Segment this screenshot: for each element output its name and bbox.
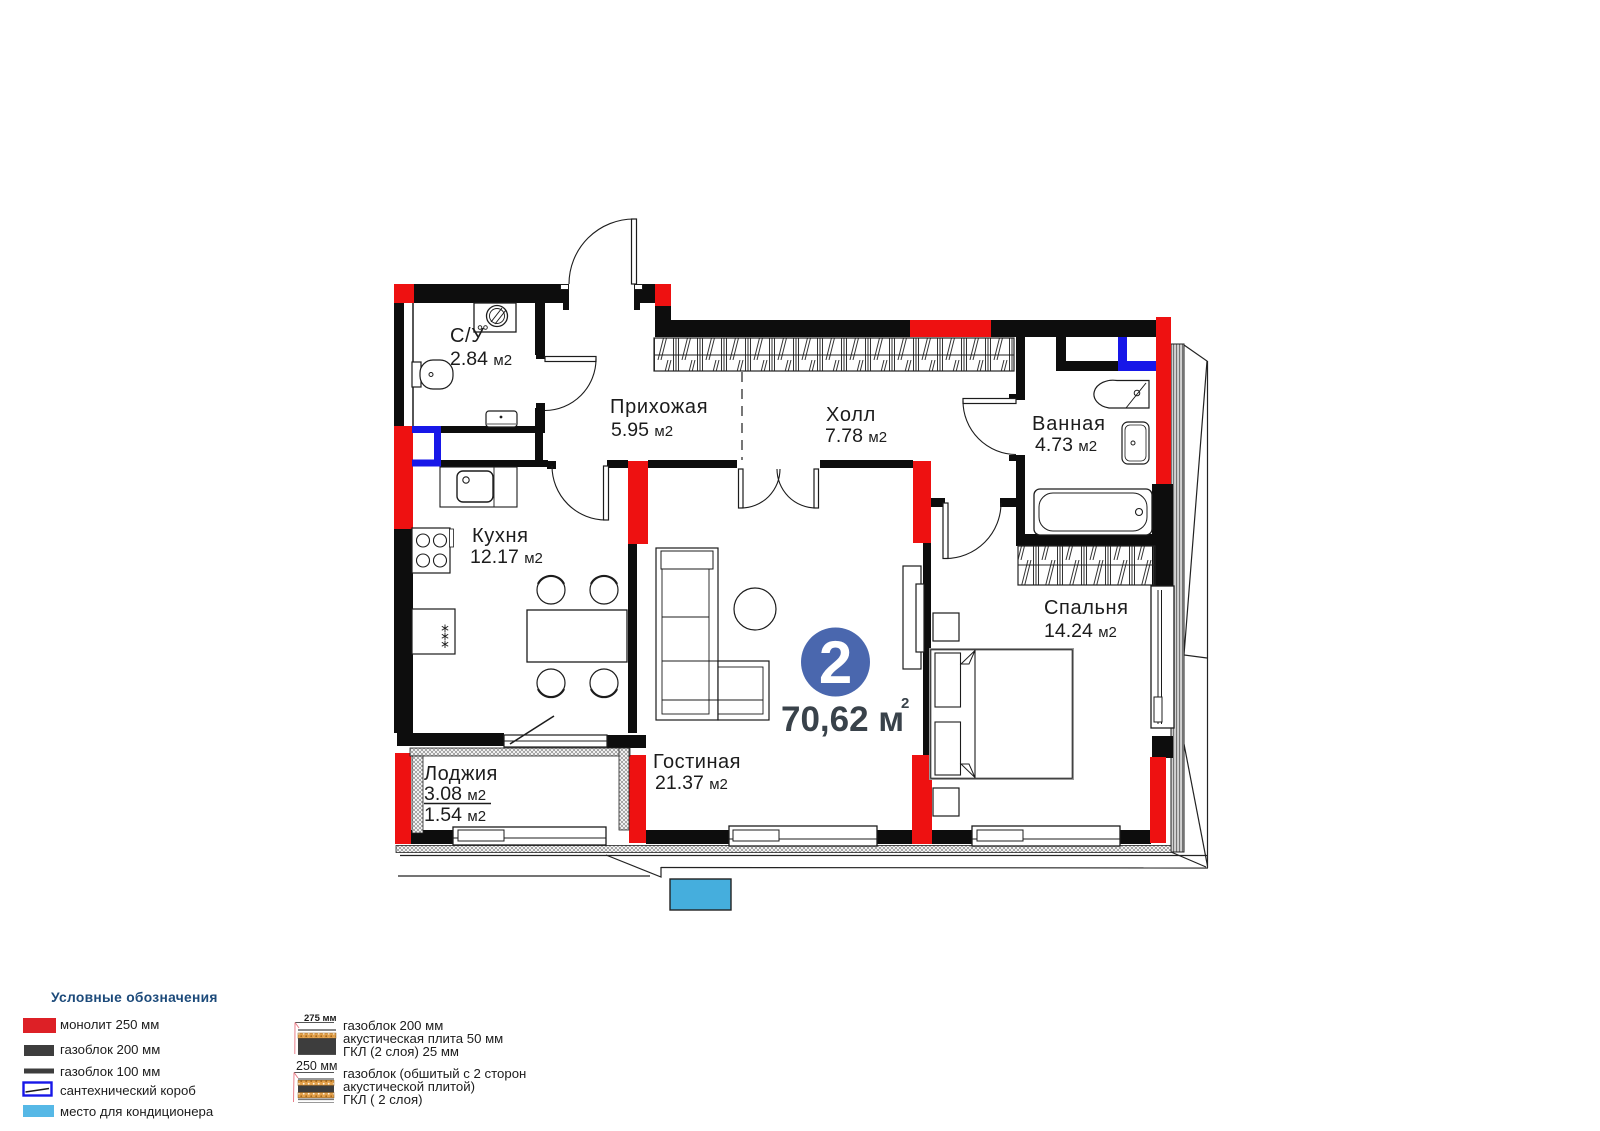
svg-text:монолит 250 мм: монолит 250 мм (60, 1017, 159, 1032)
svg-text:14.24 м2: 14.24 м2 (1044, 620, 1117, 642)
svg-text:1.54 м2: 1.54 м2 (424, 804, 486, 826)
svg-text:газоблок 200 мм: газоблок 200 мм (60, 1042, 160, 1057)
svg-text:место для кондиционера: место для кондиционера (60, 1104, 214, 1119)
svg-text:Кухня: Кухня (472, 525, 529, 547)
svg-text:2: 2 (901, 695, 909, 712)
svg-text:газоблок 100 мм: газоблок 100 мм (60, 1064, 160, 1079)
svg-text:Холл: Холл (826, 404, 876, 426)
svg-text:ГКЛ (2 слоя) 25 мм: ГКЛ (2 слоя) 25 мм (343, 1044, 459, 1059)
svg-text:2: 2 (819, 629, 852, 696)
svg-text:2.84 м2: 2.84 м2 (450, 348, 512, 370)
svg-text:сантехнический короб: сантехнический короб (60, 1083, 196, 1098)
svg-text:7.78 м2: 7.78 м2 (825, 425, 887, 447)
svg-text:21.37 м2: 21.37 м2 (655, 772, 728, 794)
svg-text:Спальня: Спальня (1044, 597, 1129, 619)
svg-text:Гостиная: Гостиная (653, 751, 741, 773)
svg-text:ГКЛ ( 2 слоя): ГКЛ ( 2 слоя) (343, 1092, 423, 1107)
svg-text:Прихожая: Прихожая (610, 396, 708, 418)
svg-text:5.95 м2: 5.95 м2 (611, 419, 673, 441)
svg-text:70,62 м: 70,62 м (781, 700, 904, 739)
svg-text:12.17 м2: 12.17 м2 (470, 546, 543, 568)
svg-text:250 мм: 250 мм (296, 1059, 338, 1073)
svg-text:4.73 м2: 4.73 м2 (1035, 434, 1097, 456)
svg-text:3.08 м2: 3.08 м2 (424, 783, 486, 805)
svg-text:С/У: С/У (450, 325, 485, 347)
svg-text:Ванная: Ванная (1032, 413, 1106, 435)
svg-text:Лоджия: Лоджия (424, 763, 498, 785)
svg-text:Условные обозначения: Условные обозначения (51, 990, 218, 1005)
